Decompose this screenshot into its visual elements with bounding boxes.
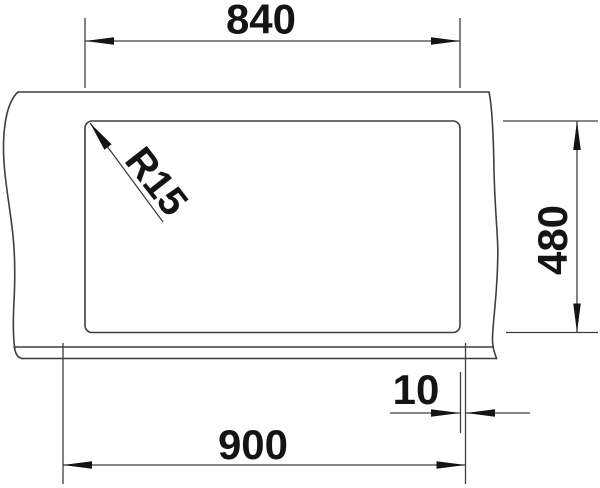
radius-r15-label: R15 (116, 139, 196, 224)
arrow-480-down (573, 304, 581, 333)
arrow-840-left (85, 37, 114, 45)
sink-cutout-technical-drawing: 840 480 900 10 R15 (0, 0, 600, 488)
dim-480-label: 480 (529, 205, 576, 275)
arrow-900-left (63, 461, 92, 469)
arrow-10-right (466, 409, 495, 417)
dim-10-label: 10 (393, 366, 440, 413)
dim-900-label: 900 (218, 421, 288, 468)
arrow-480-up (573, 121, 581, 150)
dimension-lines (63, 18, 598, 484)
countertop-outline (4, 92, 498, 359)
arrow-840-right (431, 37, 460, 45)
arrow-radius-leader (90, 123, 112, 150)
drawing-svg: 840 480 900 10 R15 (0, 0, 600, 488)
dimension-arrows (63, 37, 581, 469)
countertop-right-break-edge (489, 92, 498, 359)
arrow-900-right (437, 461, 466, 469)
countertop-left-break-edge (4, 92, 23, 359)
dim-840-label: 840 (226, 0, 296, 43)
